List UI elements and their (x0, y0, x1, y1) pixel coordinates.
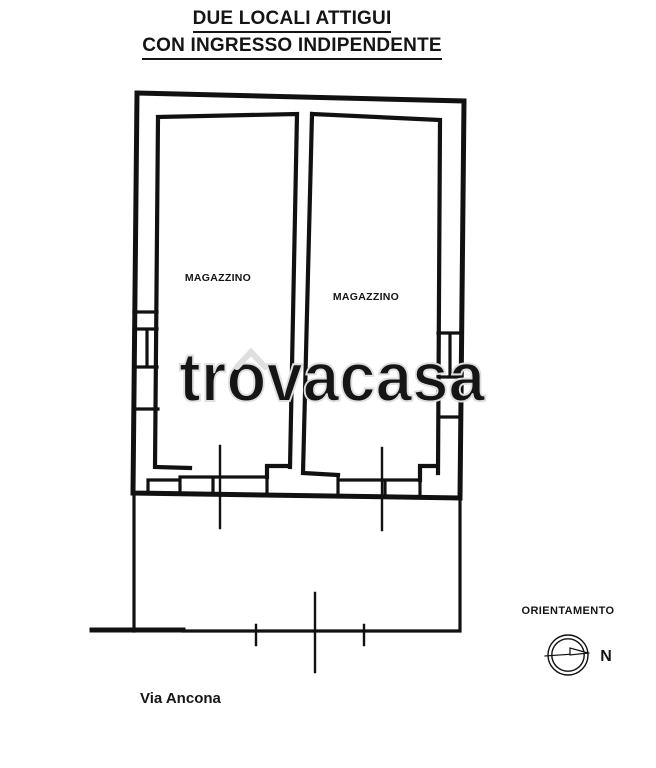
north-label: N (600, 648, 612, 665)
floor-plan-svg: MAGAZZINO MAGAZZINO Via Ancona ORIENTAME… (0, 0, 656, 768)
room-label-right: MAGAZZINO (333, 291, 399, 303)
compass-icon (545, 635, 589, 675)
watermark-text: trovacasa (179, 338, 486, 416)
compass: ORIENTAMENTO N (521, 605, 614, 675)
orientation-label: ORIENTAMENTO (521, 605, 614, 617)
room-label-left: MAGAZZINO (185, 272, 251, 284)
courtyard-walls (134, 494, 460, 631)
street-label: Via Ancona (140, 690, 222, 707)
watermark: trovacasa (179, 338, 486, 416)
floor-plan-page: DUE LOCALI ATTIGUI CON INGRESSO INDIPEND… (0, 0, 656, 768)
room-right (303, 114, 440, 494)
room-left (148, 114, 297, 492)
building-outline (133, 93, 464, 498)
